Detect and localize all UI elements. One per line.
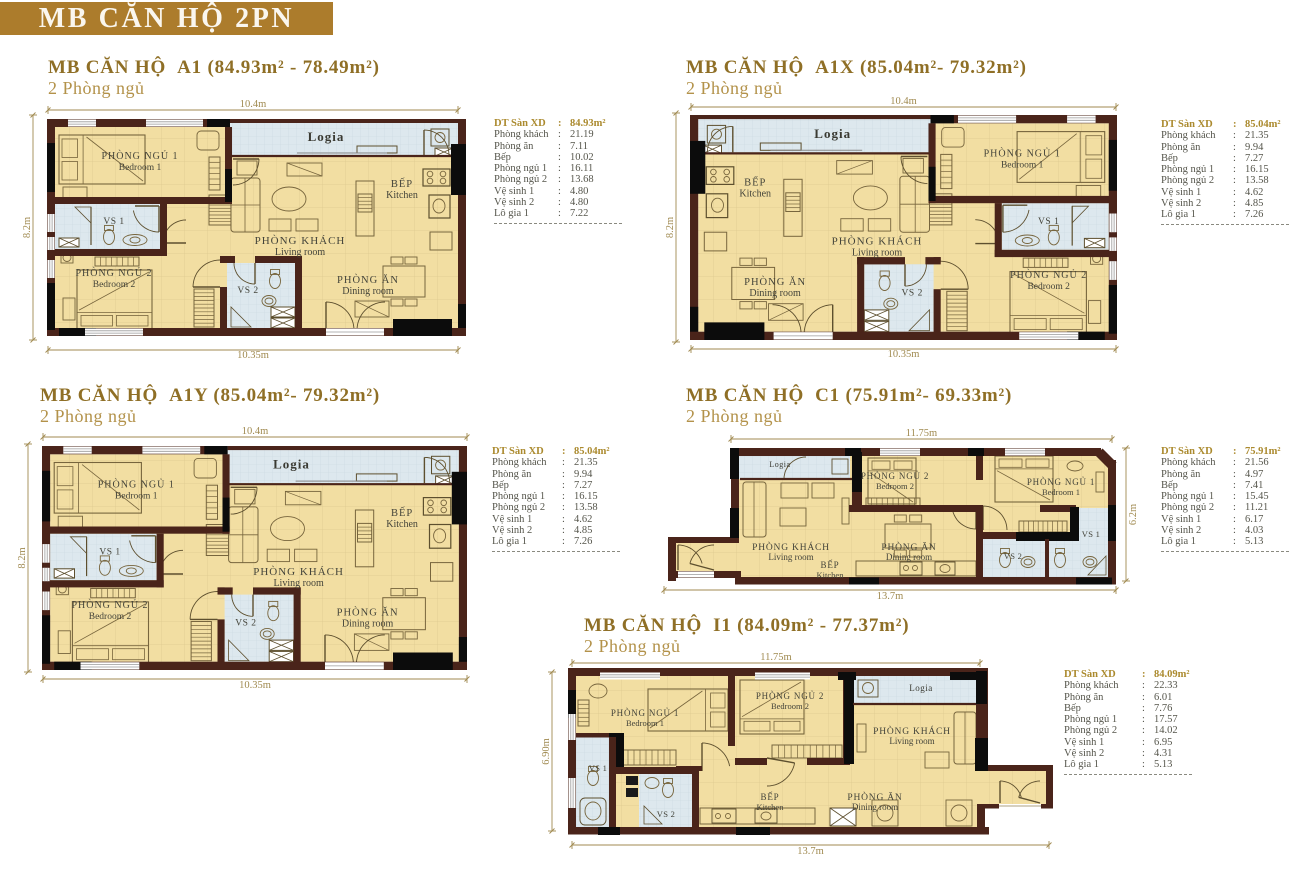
svg-text:VS 1: VS 1 bbox=[103, 217, 124, 227]
svg-text:10.35m: 10.35m bbox=[239, 680, 271, 691]
svg-text:Bedroom 1: Bedroom 1 bbox=[1042, 487, 1080, 497]
svg-text:VS 1: VS 1 bbox=[99, 547, 120, 557]
svg-text:8.2m: 8.2m bbox=[665, 217, 676, 238]
svg-text:Bedroom 1: Bedroom 1 bbox=[626, 718, 664, 728]
svg-text:PHÒNG NGỦ 2: PHÒNG NGỦ 2 bbox=[75, 267, 152, 279]
svg-text:VS 1: VS 1 bbox=[1082, 529, 1100, 539]
svg-text:BẾP: BẾP bbox=[391, 177, 413, 190]
svg-text:Kitchen: Kitchen bbox=[386, 190, 418, 201]
svg-text:Dining room: Dining room bbox=[852, 802, 898, 812]
svg-text:PHÒNG KHÁCH: PHÒNG KHÁCH bbox=[253, 566, 344, 578]
svg-text:Bedroom 1: Bedroom 1 bbox=[115, 491, 158, 501]
svg-text:Logia: Logia bbox=[909, 683, 933, 693]
svg-text:PHÒNG NGỦ 2: PHÒNG NGỦ 2 bbox=[756, 691, 824, 701]
svg-text:11.75m: 11.75m bbox=[760, 652, 791, 663]
svg-text:10.4m: 10.4m bbox=[240, 99, 267, 110]
svg-text:PHÒNG ĂN: PHÒNG ĂN bbox=[337, 606, 399, 618]
svg-text:VS 2: VS 2 bbox=[657, 809, 675, 819]
svg-text:Kitchen: Kitchen bbox=[817, 570, 845, 580]
svg-text:Logia: Logia bbox=[769, 460, 790, 469]
svg-text:11.75m: 11.75m bbox=[906, 428, 937, 439]
svg-text:VS 1: VS 1 bbox=[1038, 217, 1059, 227]
svg-text:Kitchen: Kitchen bbox=[757, 802, 785, 812]
svg-text:PHÒNG NGỦ 2: PHÒNG NGỦ 2 bbox=[71, 599, 148, 611]
svg-text:10.35m: 10.35m bbox=[888, 349, 920, 360]
svg-text:PHÒNG NGỦ 1: PHÒNG NGỦ 1 bbox=[101, 150, 178, 162]
svg-text:Living room: Living room bbox=[768, 552, 813, 562]
svg-text:6.90m: 6.90m bbox=[541, 738, 552, 765]
svg-text:Living room: Living room bbox=[275, 247, 325, 258]
svg-text:Living room: Living room bbox=[852, 248, 902, 259]
svg-text:Bedroom 2: Bedroom 2 bbox=[89, 612, 132, 622]
svg-text:BẾP: BẾP bbox=[391, 506, 413, 519]
svg-text:BẾP: BẾP bbox=[761, 792, 780, 802]
svg-text:Kitchen: Kitchen bbox=[739, 189, 771, 200]
svg-text:PHÒNG NGỦ 1: PHÒNG NGỦ 1 bbox=[98, 478, 175, 490]
svg-text:VS 2: VS 2 bbox=[1004, 551, 1022, 561]
svg-text:10.4m: 10.4m bbox=[242, 426, 269, 437]
svg-text:Bedroom 1: Bedroom 1 bbox=[1001, 161, 1044, 171]
svg-text:Bedroom 1: Bedroom 1 bbox=[119, 163, 162, 173]
svg-text:PHÒNG ĂN: PHÒNG ĂN bbox=[744, 276, 806, 288]
svg-text:10.35m: 10.35m bbox=[237, 350, 269, 361]
svg-text:PHÒNG ĂN: PHÒNG ĂN bbox=[337, 274, 399, 286]
svg-text:Bedroom 2: Bedroom 2 bbox=[1027, 282, 1070, 292]
svg-text:BẾP: BẾP bbox=[821, 560, 840, 570]
svg-text:Logia: Logia bbox=[814, 126, 851, 141]
svg-text:Dining room: Dining room bbox=[342, 618, 394, 629]
svg-text:6.2m: 6.2m bbox=[1128, 504, 1139, 525]
svg-text:Dining room: Dining room bbox=[886, 552, 932, 562]
svg-text:Living room: Living room bbox=[889, 736, 934, 746]
svg-text:BẾP: BẾP bbox=[744, 176, 766, 189]
svg-text:8.2m: 8.2m bbox=[22, 217, 33, 238]
svg-text:VS 2: VS 2 bbox=[237, 286, 258, 296]
svg-text:VS 1: VS 1 bbox=[589, 763, 607, 773]
svg-text:13.7m: 13.7m bbox=[797, 846, 824, 857]
svg-text:PHÒNG KHÁCH: PHÒNG KHÁCH bbox=[832, 236, 923, 248]
svg-text:Dining room: Dining room bbox=[749, 288, 801, 299]
svg-text:VS 2: VS 2 bbox=[235, 619, 256, 629]
svg-text:8.2m: 8.2m bbox=[17, 547, 28, 568]
svg-text:PHÒNG NGỦ 2: PHÒNG NGỦ 2 bbox=[1010, 269, 1087, 281]
svg-text:10.4m: 10.4m bbox=[890, 96, 917, 107]
svg-text:13.7m: 13.7m bbox=[877, 591, 904, 602]
svg-text:PHÒNG KHÁCH: PHÒNG KHÁCH bbox=[255, 235, 346, 247]
svg-text:Living room: Living room bbox=[273, 578, 323, 589]
svg-text:PHÒNG NGỦ 1: PHÒNG NGỦ 1 bbox=[1027, 477, 1095, 487]
svg-text:Bedroom 2: Bedroom 2 bbox=[771, 701, 809, 711]
svg-text:Dining room: Dining room bbox=[342, 286, 394, 297]
svg-text:PHÒNG NGỦ 2: PHÒNG NGỦ 2 bbox=[861, 471, 929, 481]
svg-text:Kitchen: Kitchen bbox=[386, 519, 418, 530]
svg-text:VS 2: VS 2 bbox=[902, 288, 923, 298]
svg-text:Logia: Logia bbox=[273, 457, 310, 472]
svg-text:PHÒNG NGỦ 1: PHÒNG NGỦ 1 bbox=[984, 148, 1061, 160]
svg-text:Bedroom 2: Bedroom 2 bbox=[876, 481, 914, 491]
svg-text:PHÒNG NGỦ 1: PHÒNG NGỦ 1 bbox=[611, 708, 679, 718]
svg-text:Bedroom 2: Bedroom 2 bbox=[93, 280, 136, 290]
svg-text:Logia: Logia bbox=[308, 129, 345, 144]
